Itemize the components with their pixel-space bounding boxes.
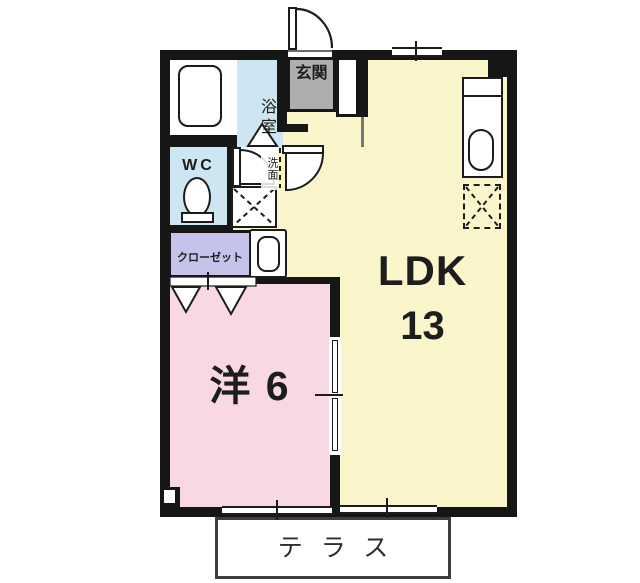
wc-label: WC [170, 158, 227, 174]
terrace-area: テラス [215, 517, 451, 579]
entrance-door-leaf [288, 7, 297, 50]
bathroom-label: 浴室 [246, 84, 274, 152]
pillar-notch [164, 490, 175, 503]
entrance-threshold [288, 50, 332, 52]
entrance-door-arc [297, 9, 332, 48]
toilet-tank [181, 212, 214, 223]
window-top [392, 47, 442, 57]
wall-top-left [160, 50, 288, 60]
floor-plan: テラス 浴室 玄関 WC 洗面 ク [0, 0, 640, 583]
washbasin-bowl [257, 236, 280, 272]
sliding-door-panel-top [332, 340, 338, 393]
wall-bottom [160, 507, 517, 517]
washroom-label: 洗面 [261, 148, 277, 190]
shoe-cabinet [336, 57, 359, 117]
wall-left [160, 50, 170, 517]
ldk-size-label: 13 [350, 306, 495, 346]
wall-below-bathtub [166, 135, 237, 147]
toilet-bowl [183, 177, 211, 217]
closet-label: クローゼット [171, 253, 249, 264]
bathtub [178, 65, 222, 127]
entrance-step-line [361, 117, 364, 147]
window-bottom-ldk [340, 505, 437, 514]
wall-right [507, 50, 517, 517]
terrace-label: テラス [260, 536, 407, 561]
refrigerator-space [463, 184, 501, 229]
window-bottom-bedroom [222, 506, 332, 515]
sliding-door-panel-bottom [332, 398, 338, 451]
washing-machine-space [231, 186, 277, 228]
kitchen-counter-top [462, 77, 503, 97]
ldk-label: LDK [350, 250, 495, 292]
bedroom-label: 洋 6 [170, 366, 330, 407]
wall-above-bedroom [252, 277, 340, 284]
wall-entrance-stub [359, 50, 368, 117]
kitchen-sink [468, 129, 494, 171]
wall-bath-entrance [277, 50, 287, 131]
wall-entrance-bottom-stub [277, 124, 308, 132]
entrance-label: 玄関 [287, 66, 336, 82]
